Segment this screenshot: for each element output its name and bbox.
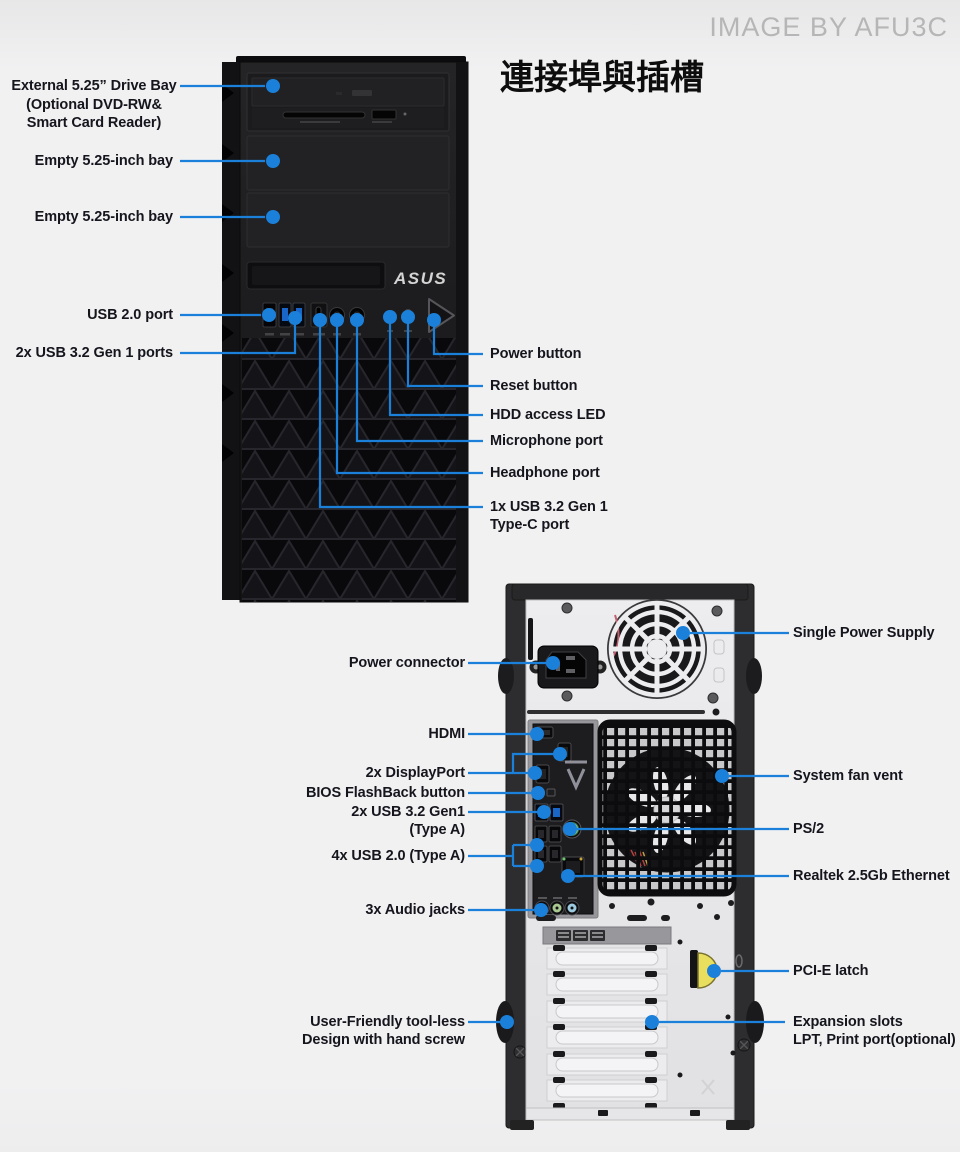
callout-dot xyxy=(350,313,364,327)
label-empty-bay-bottom: Empty 5.25-inch bay xyxy=(35,208,173,226)
label-pcie-latch: PCI-E latch xyxy=(793,962,868,980)
label-fan-vent: System fan vent xyxy=(793,767,903,785)
label-empty-bay-top: Empty 5.25-inch bay xyxy=(35,152,173,170)
smart-card-reader xyxy=(252,108,444,128)
label-usb32-front: 2x USB 3.2 Gen 1 ports xyxy=(16,344,173,362)
front-mesh xyxy=(242,338,456,602)
label-ps2: PS/2 xyxy=(793,820,824,838)
label-expansion-line1: Expansion slots xyxy=(793,1013,956,1031)
label-headphone: Headphone port xyxy=(490,464,600,482)
label-displayport: 2x DisplayPort xyxy=(366,764,465,782)
callout-dot xyxy=(563,822,577,836)
label-usb32-rear-line1: 2x USB 3.2 Gen1 xyxy=(351,803,465,821)
label-drive-bay: External 5.25” Drive Bay (Optional DVD-R… xyxy=(8,77,180,133)
label-usb32-rear-line2: (Type A) xyxy=(351,821,465,839)
system-fan-vent xyxy=(600,722,734,894)
callout-dot xyxy=(330,313,344,327)
chassis-bottom xyxy=(510,1108,750,1130)
callout-dot xyxy=(530,838,544,852)
power-connector xyxy=(530,646,607,688)
page-title: 連接埠與插槽 xyxy=(500,50,704,99)
label-power-button: Power button xyxy=(490,345,581,363)
label-expansion-line2: LPT, Print port(optional) xyxy=(793,1031,956,1049)
callout-dot xyxy=(528,766,542,780)
label-drive-bay-line1: External 5.25” Drive Bay xyxy=(8,77,180,96)
callout-dot xyxy=(676,626,690,640)
callout-dot xyxy=(383,310,397,324)
asus-logo: ASUS xyxy=(393,269,447,288)
label-usb32-rear: 2x USB 3.2 Gen1 (Type A) xyxy=(351,803,465,839)
lpt-strip xyxy=(543,927,671,944)
label-ethernet: Realtek 2.5Gb Ethernet xyxy=(793,867,950,885)
label-power-supply: Single Power Supply xyxy=(793,624,935,642)
callout-dot xyxy=(561,869,575,883)
label-usb2-front: USB 2.0 port xyxy=(87,306,173,324)
handle-recess xyxy=(247,262,385,289)
label-drive-bay-line3: Smart Card Reader) xyxy=(8,114,180,133)
label-bios-flashback: BIOS FlashBack button xyxy=(306,784,465,802)
callout-dot xyxy=(715,769,729,783)
callout-dot xyxy=(313,313,327,327)
callout-dot xyxy=(288,311,302,325)
callout-dot xyxy=(553,747,567,761)
callout-dot xyxy=(534,903,548,917)
label-usbc-line2: Type-C port xyxy=(490,516,608,534)
label-audio-jacks: 3x Audio jacks xyxy=(365,901,465,919)
callout-dot xyxy=(262,308,276,322)
callout-dot xyxy=(427,313,441,327)
callout-dot xyxy=(530,727,544,741)
callout-dot xyxy=(707,964,721,978)
label-reset-button: Reset button xyxy=(490,377,577,395)
label-microphone: Microphone port xyxy=(490,432,603,450)
label-power-connector: Power connector xyxy=(349,654,465,672)
callout-dot xyxy=(266,210,280,224)
front-tower: ASUS xyxy=(222,56,468,602)
label-toolless-line2: Design with hand screw xyxy=(302,1031,465,1049)
label-toolless: User-Friendly tool-less Design with hand… xyxy=(302,1013,465,1049)
side-vents-strip xyxy=(222,62,242,600)
callout-dot xyxy=(537,805,551,819)
label-usb20-rear: 4x USB 2.0 (Type A) xyxy=(332,847,465,865)
rear-tower xyxy=(496,584,764,1130)
callout-dot xyxy=(530,859,544,873)
callout-dot xyxy=(401,310,415,324)
label-drive-bay-line2: (Optional DVD-RW& xyxy=(8,96,180,115)
label-usbc-line1: 1x USB 3.2 Gen 1 xyxy=(490,498,608,516)
callout-dot xyxy=(531,786,545,800)
watermark: IMAGE BY AFU3C xyxy=(709,12,948,43)
callout-dot xyxy=(500,1015,514,1029)
infographic-canvas: ASUS xyxy=(0,0,960,1152)
label-hdmi: HDMI xyxy=(428,725,465,743)
label-expansion: Expansion slots LPT, Print port(optional… xyxy=(793,1013,956,1049)
callout-dot xyxy=(266,154,280,168)
callout-dot xyxy=(546,656,560,670)
callout-dot xyxy=(266,79,280,93)
side-tab-right xyxy=(746,658,762,694)
label-toolless-line1: User-Friendly tool-less xyxy=(302,1013,465,1031)
panel-groove xyxy=(527,710,705,714)
label-usbc: 1x USB 3.2 Gen 1 Type-C port xyxy=(490,498,608,534)
callout-dot xyxy=(645,1015,659,1029)
label-hdd-led: HDD access LED xyxy=(490,406,605,424)
